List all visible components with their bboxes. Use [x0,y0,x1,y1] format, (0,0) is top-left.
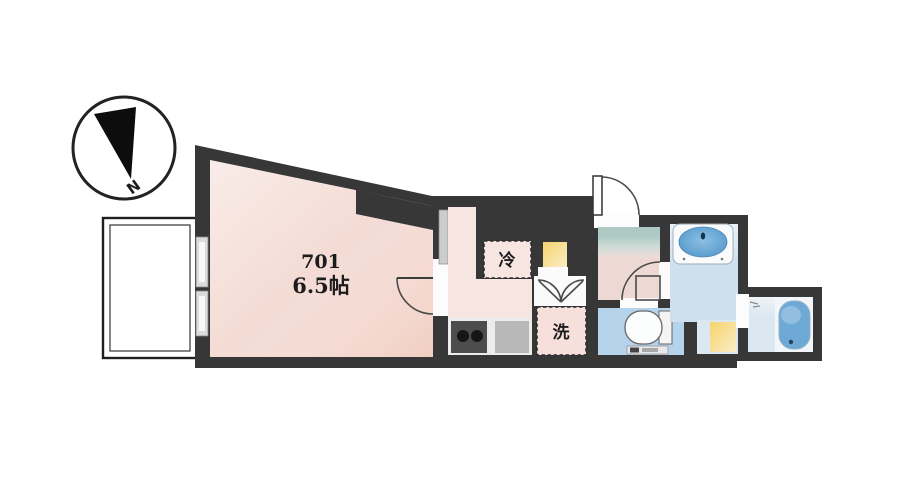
window-glass-upper [199,242,205,282]
floor-plan-page: N 701 6.5帖 冷 [0,0,905,483]
entrance-door [593,176,639,228]
tub-highlight [781,306,801,324]
kitchen-alcove [448,207,476,267]
stove-burner-right [471,330,483,342]
shoe-cabinet-shade [543,242,567,267]
toilet-bowl [625,311,662,344]
bath-mat-shade [710,322,736,352]
compass: N [73,97,175,199]
kitchen-sink [495,321,529,353]
toilet-base-mark [642,348,658,352]
fridge-label: 冷 [499,250,516,271]
balcony [103,218,197,358]
entrance-fade [598,237,660,259]
bathroom-opening [736,294,749,328]
washbasin-faucet [701,233,705,240]
fridge-space: 冷 [484,241,531,278]
washbasin-bowl [679,227,727,257]
stove-burner-left [457,330,469,342]
counter-dot-right [721,258,724,261]
counter-dot-left [683,258,686,261]
entrance-door-arc [601,177,639,215]
balcony-window [196,237,208,336]
entrance-door-leaf [593,176,602,215]
kitchen-window [439,210,448,264]
room-door-opening [433,259,449,316]
window-glass-lower [199,296,205,331]
room-size-label: 6.5帖 [292,273,350,298]
tub-drain [789,340,793,344]
washer-label: 洗 [553,322,570,343]
room-number-label: 701 [301,251,341,273]
balcony-outline [103,218,197,358]
toilet-control [630,348,639,353]
floor-plan-canvas: N 701 6.5帖 冷 [0,0,905,483]
laundry-space: 洗 [534,276,586,355]
